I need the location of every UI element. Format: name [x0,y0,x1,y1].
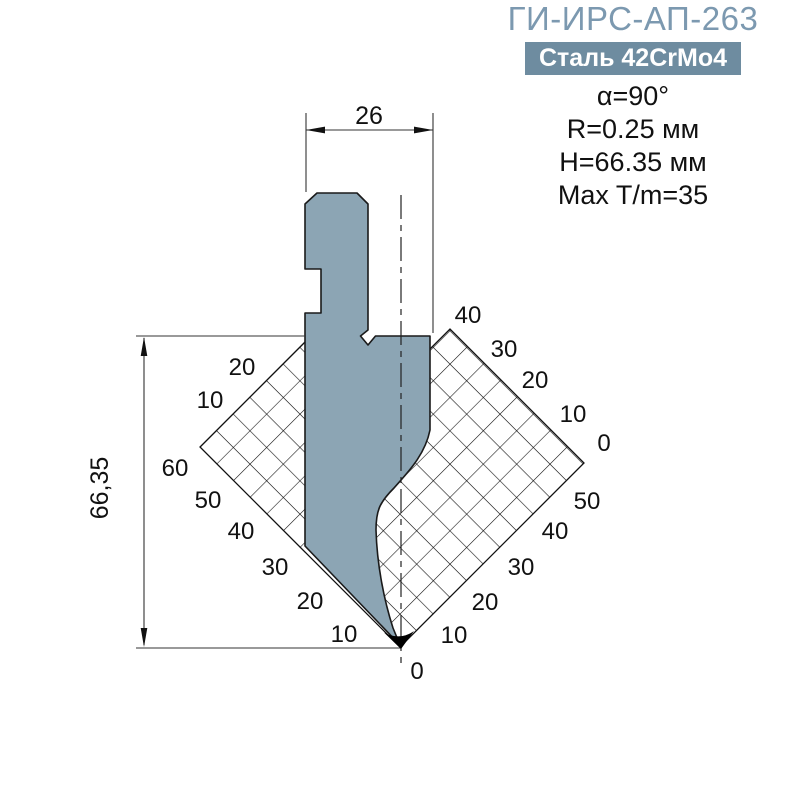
scale-label: 50 [574,488,601,515]
scale-label: 40 [228,518,255,545]
scale-origin-label: 0 [410,658,423,685]
scale-label: 10 [197,387,224,414]
arrowhead-down [141,628,148,647]
punch-drawing-canvas: 26 66,35 20 10 40 30 20 10 0 60 50 40 [0,0,800,800]
scale-label: 60 [162,455,189,482]
technical-drawing-page: ГИ-ИРС-АП-263 Сталь 42CrMo4 α=90° R=0.25… [0,0,800,800]
scale-label: 20 [229,354,256,381]
scale-label: 40 [455,302,482,329]
scale-label: 40 [542,518,569,545]
scale-label: 30 [508,554,535,581]
width-dimension-label: 26 [355,102,383,130]
arrowhead-right [414,127,433,134]
arrowhead-up [141,337,148,356]
scale-label: 10 [441,622,468,649]
scale-label: 10 [331,621,358,648]
scale-label: 20 [522,367,549,394]
scale-label: 30 [262,554,289,581]
scale-label: 50 [195,487,222,514]
scale-label: 20 [297,588,324,615]
arrowhead-left [306,127,325,134]
scale-label: 30 [491,336,518,363]
scale-label: 0 [597,430,610,457]
height-dimension-label: 66,35 [86,457,114,520]
scale-label: 20 [472,589,499,616]
scale-label: 10 [560,401,587,428]
